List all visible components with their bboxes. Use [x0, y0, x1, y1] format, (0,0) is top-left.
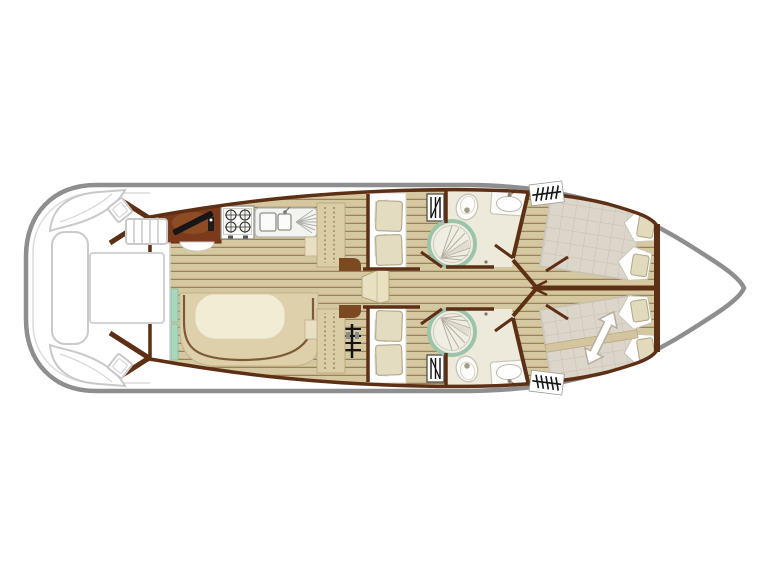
side-bench: [52, 232, 88, 344]
seat-cushion-small: [305, 237, 317, 256]
dinette-table: [195, 294, 285, 339]
hanging-locker-port: [529, 181, 564, 206]
floor-plan-canvas: [0, 0, 768, 576]
double-sink-drainer: [255, 207, 318, 237]
dinette: [171, 289, 318, 366]
shower-icon: [429, 221, 475, 267]
hanging-locker-starboard: [529, 370, 564, 395]
boat-floor-plan: [0, 0, 768, 576]
door-stop-dot: [484, 260, 487, 263]
mint-trim-upper: [171, 289, 178, 322]
corridor-shelf: [339, 258, 361, 271]
storage-column: [317, 203, 345, 267]
mid-cabin-berth: [369, 193, 406, 268]
hob-4-burner: [221, 206, 254, 239]
galley-accessory-dot: [210, 219, 213, 222]
mint-trim-lower: [171, 324, 178, 360]
deck-table: [90, 253, 164, 323]
boarding-steps: [126, 219, 167, 244]
wardrobe-icon: [427, 194, 444, 221]
